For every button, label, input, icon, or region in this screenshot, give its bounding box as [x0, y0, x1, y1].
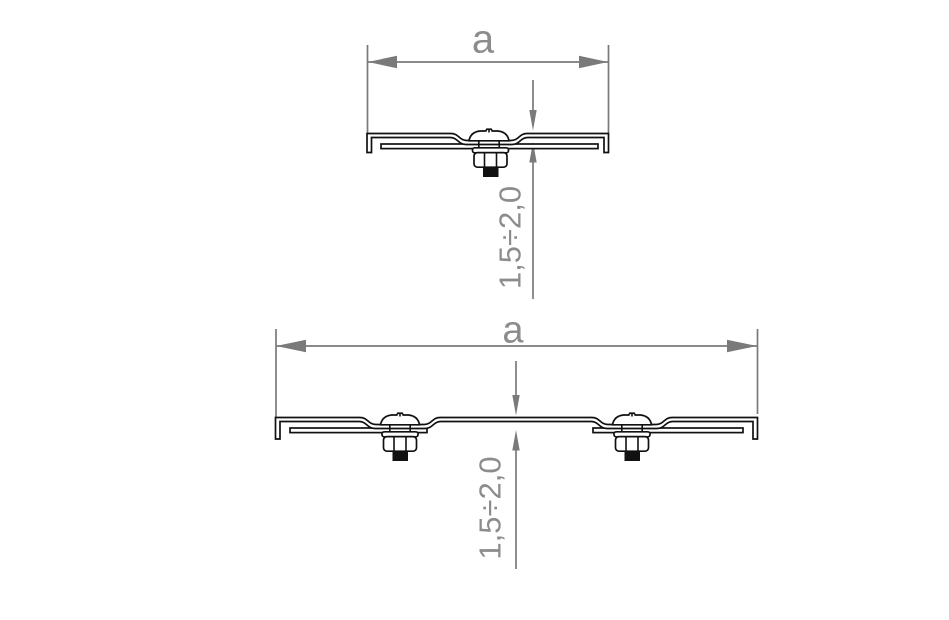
screw-head-icon [381, 413, 420, 425]
dimension-a-label: a [472, 18, 495, 62]
drawing-canvas: a 1,5÷2,0 [0, 0, 949, 620]
arrowhead-up-icon [512, 430, 519, 451]
thread-end [625, 451, 641, 461]
arrowhead-left-icon [276, 340, 306, 353]
arrowhead-right-icon [727, 340, 757, 353]
arrowhead-down-icon [512, 395, 519, 416]
screw-head-icon [613, 413, 652, 425]
screw-head-icon [469, 129, 509, 141]
dimension-a-label: a [502, 310, 524, 352]
arrowhead-right-icon [579, 56, 608, 69]
thread-end [483, 167, 499, 177]
arrowhead-left-icon [368, 56, 397, 69]
dimension-gap-bottom: 1,5÷2,0 [473, 361, 520, 569]
dimension-gap-top: 1,5÷2,0 [493, 80, 537, 299]
hex-nut-icon [382, 432, 418, 451]
thread-end [393, 451, 409, 461]
top-view: a 1,5÷2,0 [367, 18, 609, 300]
technical-drawing: a 1,5÷2,0 [0, 0, 949, 620]
arrowhead-down-icon [529, 110, 536, 131]
dimension-a-top: a [368, 18, 609, 134]
bottom-view: a 1,5÷2,0 [276, 310, 758, 570]
dimension-gap-label: 1,5÷2,0 [493, 186, 528, 289]
dimension-gap-label: 1,5÷2,0 [473, 456, 508, 559]
hex-nut-icon [614, 432, 650, 451]
hex-nut-icon [473, 148, 509, 167]
